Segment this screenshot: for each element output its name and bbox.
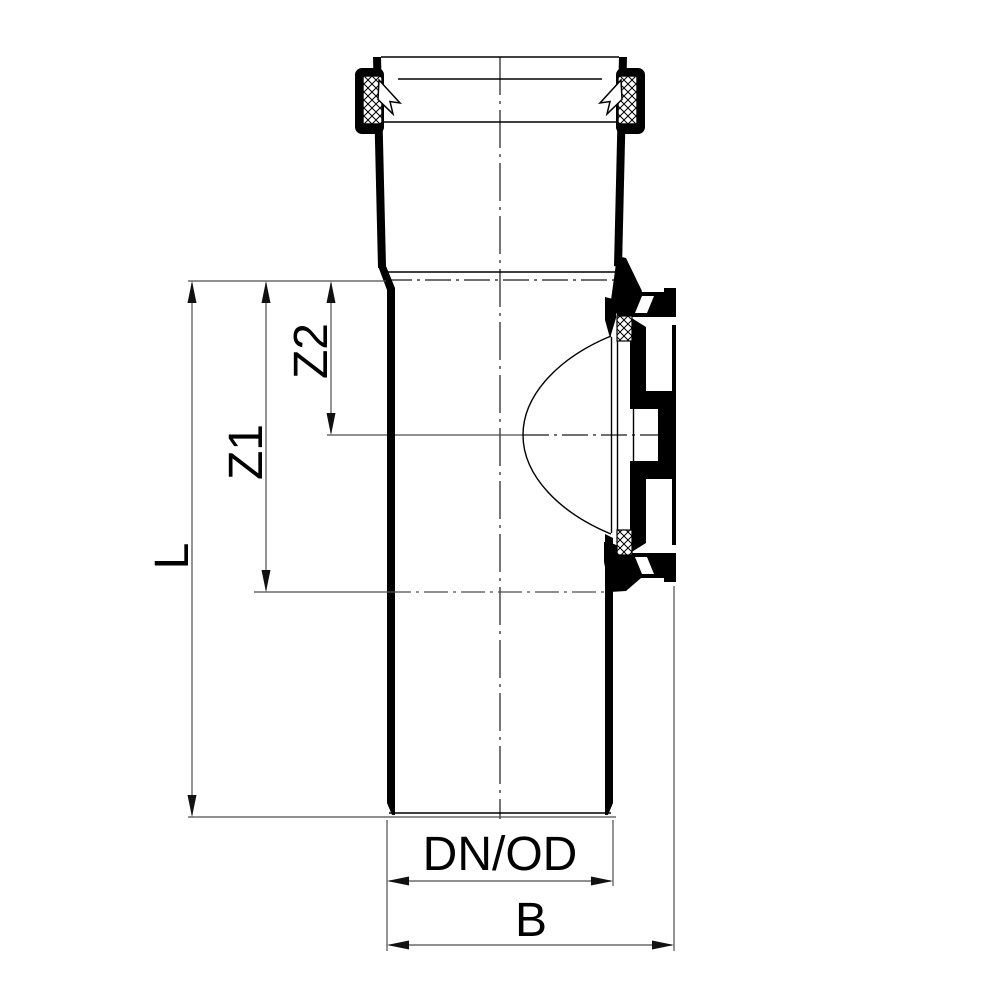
technical-drawing-canvas: L Z1 Z2 DN/OD B <box>0 0 1000 1000</box>
dimension-label-Z2: Z2 <box>285 323 338 379</box>
gasket-crosshatch <box>617 530 632 555</box>
cap-bar-top <box>630 391 676 409</box>
dimension-label-DN-OD: DN/OD <box>423 828 578 881</box>
cap-bar-bottom <box>630 461 676 479</box>
port-outer-wall-bottom <box>672 479 676 545</box>
dimension-label-L: L <box>146 543 199 570</box>
dimension-label-Z1: Z1 <box>220 424 273 480</box>
gasket-crosshatch <box>617 316 632 341</box>
pipe-fitting-section-drawing: L Z1 Z2 DN/OD B <box>0 0 1000 1000</box>
cap-tooth <box>658 409 676 461</box>
dimension-label-B: B <box>515 894 547 947</box>
port-outer-wall-top <box>672 325 676 391</box>
